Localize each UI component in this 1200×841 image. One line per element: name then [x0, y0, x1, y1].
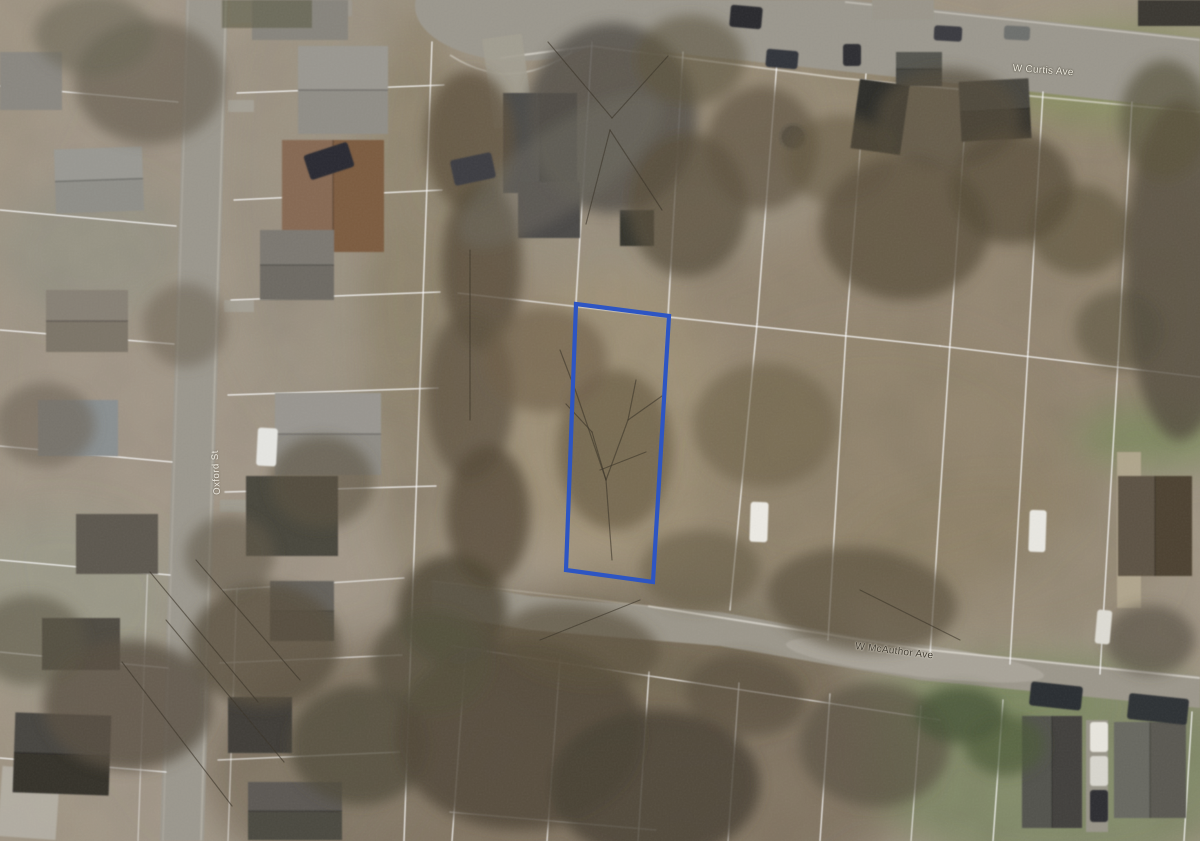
photo-grain-texture — [0, 0, 1200, 841]
aerial-photo-canvas — [0, 0, 1200, 841]
aerial-parcel-map: W Curtis Ave Oxford St W McAuthor Ave — [0, 0, 1200, 841]
photo-grain-layer — [0, 0, 1200, 841]
